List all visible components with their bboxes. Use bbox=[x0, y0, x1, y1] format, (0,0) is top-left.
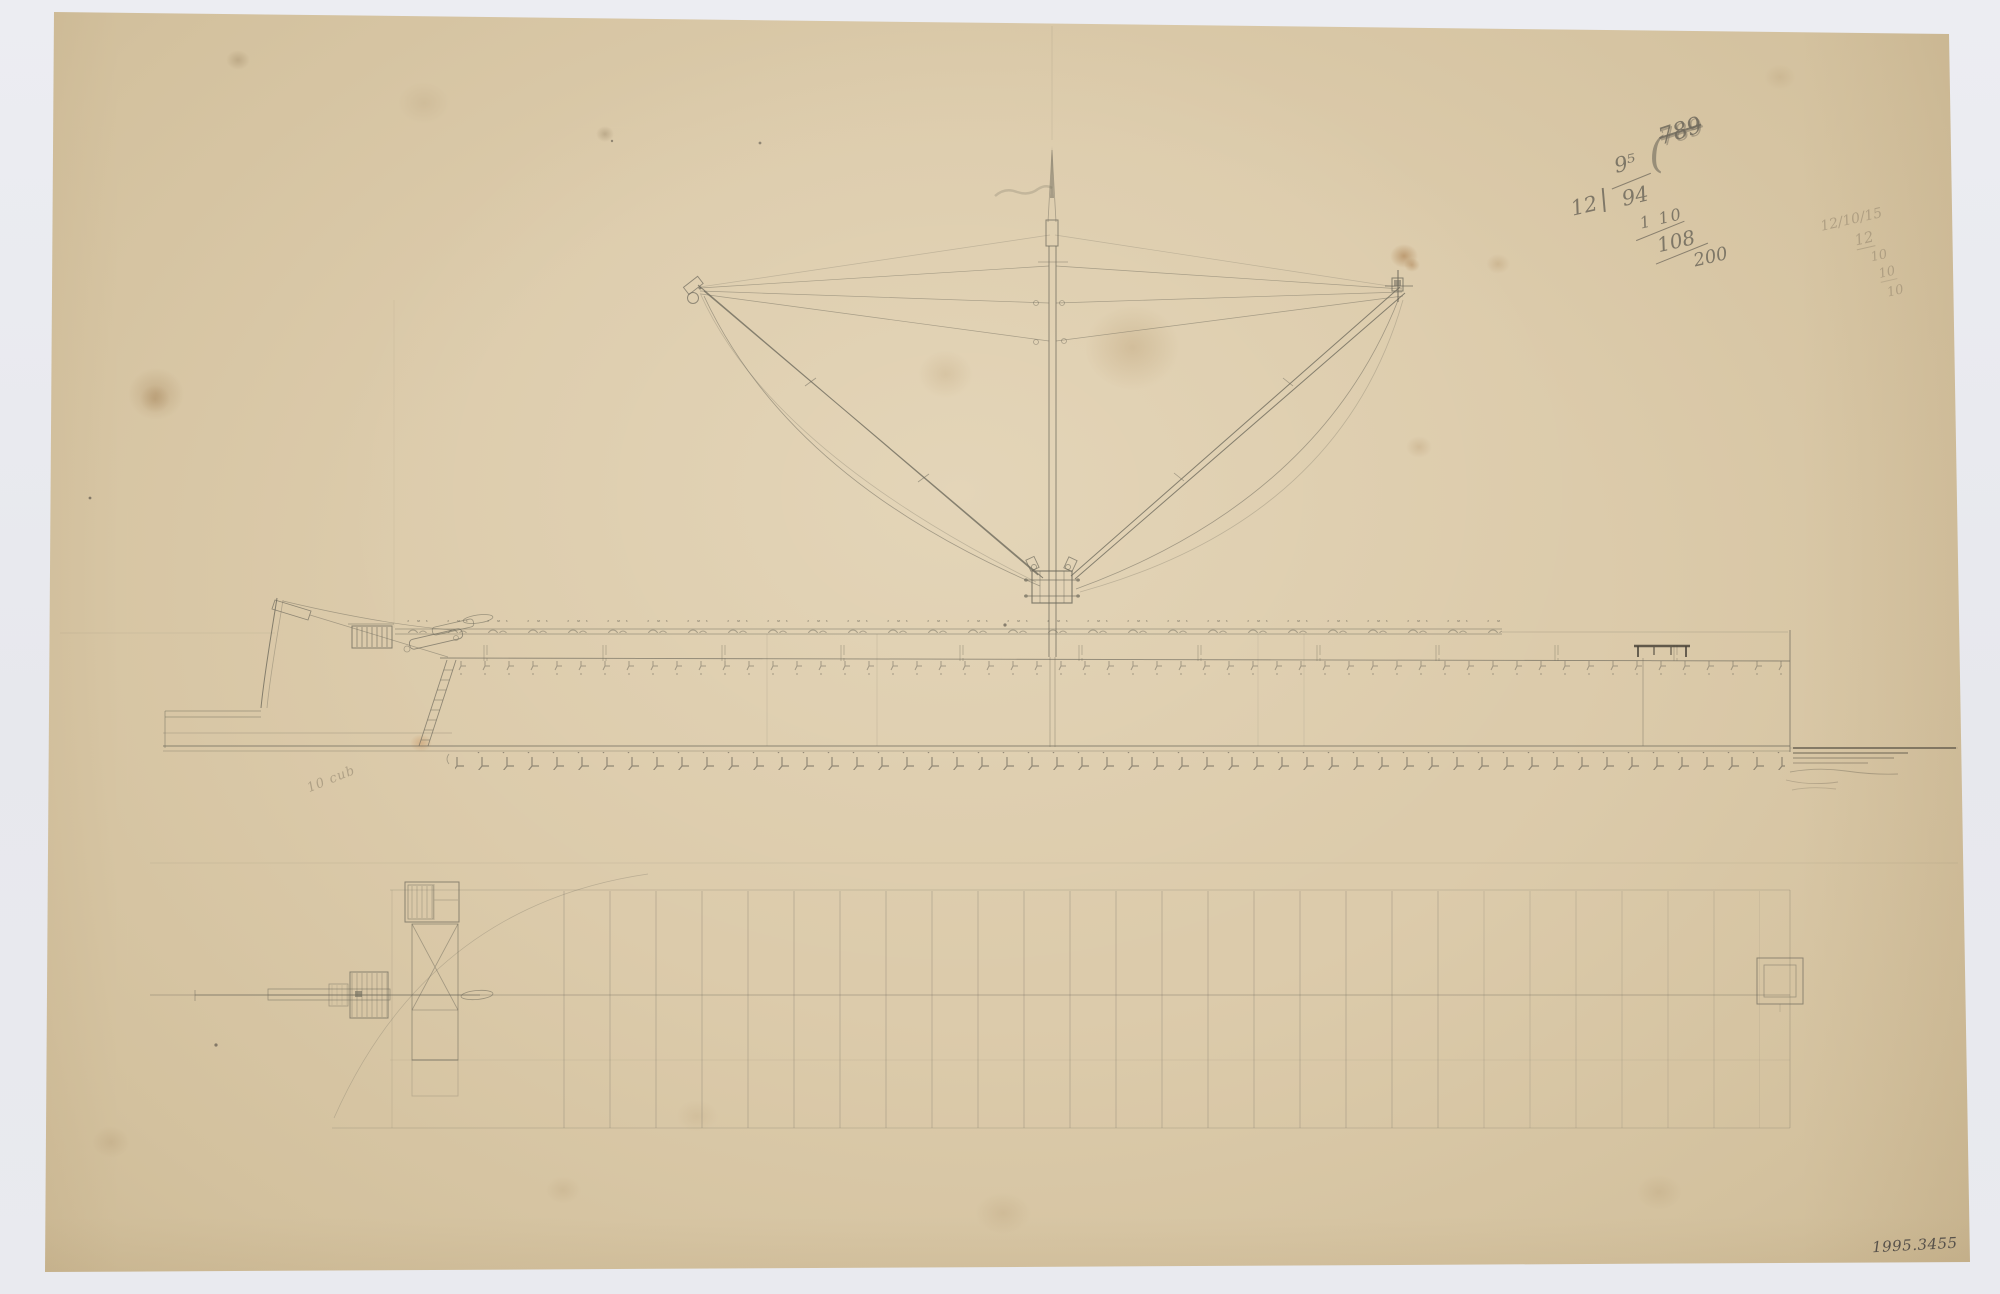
water-shading bbox=[1786, 748, 1956, 790]
derrick-boom-left bbox=[683, 276, 1043, 578]
stay-fittings bbox=[1034, 301, 1067, 345]
calc-struck-number: 789 bbox=[1655, 112, 1705, 150]
pencil-smudge bbox=[995, 186, 1052, 196]
date-line5: 10 bbox=[1886, 282, 1905, 300]
derrick-boom-right bbox=[1071, 270, 1413, 579]
date-line2: 12 bbox=[1853, 228, 1876, 251]
hull-side-elevation bbox=[60, 300, 1958, 790]
date-line3: 10 bbox=[1869, 247, 1888, 265]
slack-ropes bbox=[700, 293, 1403, 592]
date-line4: 10 bbox=[1877, 264, 1897, 283]
deck-grating bbox=[348, 624, 394, 648]
derrick-rig bbox=[683, 26, 1413, 747]
hull-plan-view bbox=[150, 863, 1958, 1128]
derrick-support-plan bbox=[412, 924, 458, 1096]
calc-numerator: 9⁵ bbox=[1612, 149, 1639, 177]
bulwark-rail bbox=[283, 601, 1788, 634]
calc-denominator: 94 bbox=[1619, 181, 1650, 210]
paper-sheet: 12 | 9⁵ 94 ( 789 1 10 108 200 12/10/15 1… bbox=[0, 0, 2000, 1294]
hold-divisions bbox=[530, 891, 1460, 1128]
companion-box-plan bbox=[405, 882, 459, 922]
deck-line bbox=[440, 645, 1790, 675]
stern-hatch-plan bbox=[1757, 958, 1803, 1012]
calc-divider: | bbox=[1598, 184, 1609, 213]
scanned-drawing-sheet: 12 | 9⁵ 94 ( 789 1 10 108 200 12/10/15 1… bbox=[0, 0, 2000, 1294]
stay-lines bbox=[700, 235, 1403, 341]
hull-bottom bbox=[163, 746, 1958, 770]
calc-prefix: 12 bbox=[1568, 191, 1599, 220]
mast-base-block bbox=[1024, 556, 1080, 603]
